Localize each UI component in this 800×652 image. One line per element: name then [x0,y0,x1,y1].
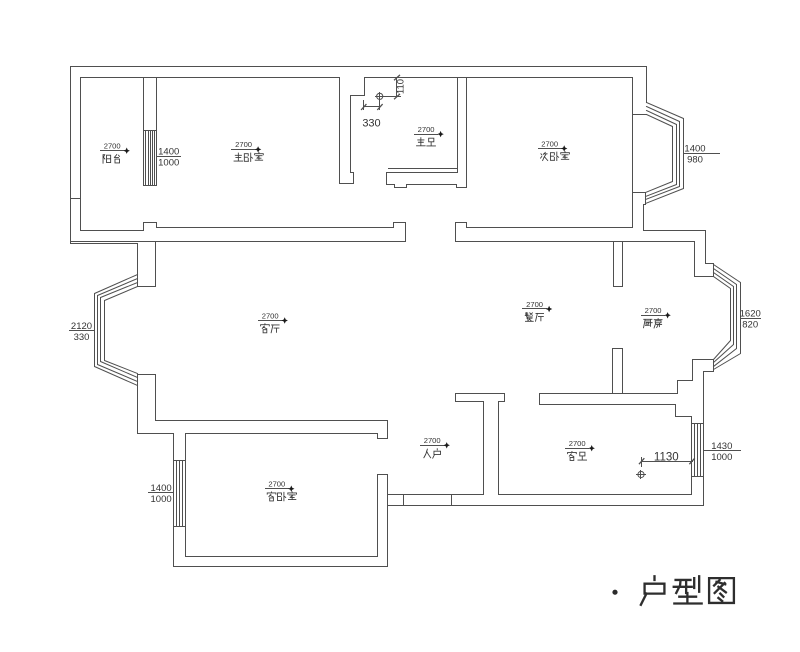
svg-text:1400: 1400 [151,483,172,494]
svg-text:1620: 1620 [740,309,761,320]
svg-text:820: 820 [742,320,758,331]
svg-text:1000: 1000 [711,452,732,463]
svg-text:2700: 2700 [268,480,285,489]
svg-text:2700: 2700 [262,311,279,320]
svg-text:2700: 2700 [424,436,441,445]
svg-text:2120: 2120 [71,321,92,332]
svg-text:330: 330 [362,118,380,130]
svg-text:2700: 2700 [235,140,252,149]
svg-text:1400: 1400 [158,146,179,157]
svg-text:2700: 2700 [541,139,558,148]
svg-text:2700: 2700 [104,142,121,151]
svg-text:2700: 2700 [569,439,586,448]
svg-text:330: 330 [74,332,90,343]
svg-text:2700: 2700 [645,306,662,315]
svg-text:1430: 1430 [711,441,732,452]
svg-text:2700: 2700 [418,125,435,134]
svg-text:1130: 1130 [654,451,679,463]
svg-text:1000: 1000 [158,157,179,168]
svg-text:2700: 2700 [526,300,543,309]
svg-text:1000: 1000 [151,494,172,505]
svg-text:110: 110 [396,79,407,94]
svg-text:1400: 1400 [684,143,705,154]
svg-text:980: 980 [687,154,703,165]
